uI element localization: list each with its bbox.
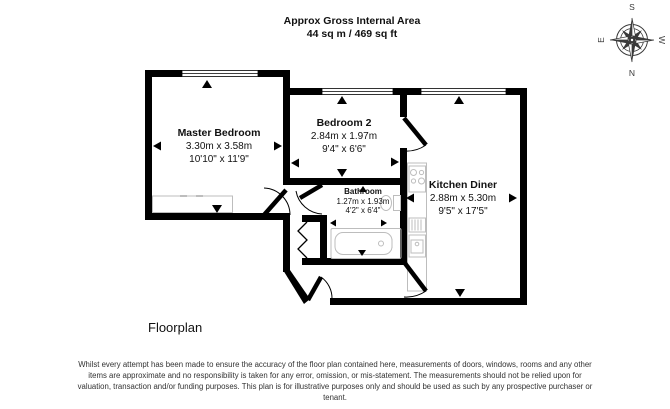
room-label-bathroom: Bathroom 1.27m x 1.93m 4'2" x 6'4": [322, 187, 404, 216]
room-imperial: 9'5" x 17'5": [406, 205, 520, 218]
room-metric: 1.27m x 1.93m: [322, 197, 404, 207]
room-label-kitchen-diner: Kitchen Diner 2.88m x 5.30m 9'5" x 17'5": [406, 179, 520, 218]
room-label-bedroom-2: Bedroom 2 2.84m x 1.97m 9'4" x 6'6": [288, 117, 400, 156]
floorplan-page: Approx Gross Internal Area 44 sq m / 469…: [0, 0, 670, 409]
room-name: Bedroom 2: [288, 117, 400, 130]
room-imperial: 4'2" x 6'4": [322, 206, 404, 216]
room-name: Bathroom: [322, 187, 404, 197]
room-metric: 2.88m x 5.30m: [406, 192, 520, 205]
master-door-leaf: [264, 190, 286, 215]
room-label-master-bedroom: Master Bedroom 3.30m x 3.58m 10'10" x 11…: [145, 127, 293, 166]
windows: [182, 71, 506, 95]
entrance-door-leaf: [308, 277, 321, 300]
room-imperial: 10'10" x 11'9": [145, 153, 293, 166]
room-metric: 2.84m x 1.97m: [288, 130, 400, 143]
room-name: Kitchen Diner: [406, 179, 520, 192]
room-imperial: 9'4" x 6'6": [288, 143, 400, 156]
disclaimer-text: Whilst every attempt has been made to en…: [77, 359, 593, 403]
room-name: Master Bedroom: [145, 127, 293, 140]
bedroom2-door-leaf: [404, 118, 426, 145]
room-metric: 3.30m x 3.58m: [145, 140, 293, 153]
bathroom-door-leaf: [300, 185, 322, 198]
drainer: [409, 218, 426, 232]
floorplan-caption: Floorplan: [148, 320, 202, 335]
wardrobe: [153, 196, 233, 213]
folding-door: [298, 222, 307, 258]
